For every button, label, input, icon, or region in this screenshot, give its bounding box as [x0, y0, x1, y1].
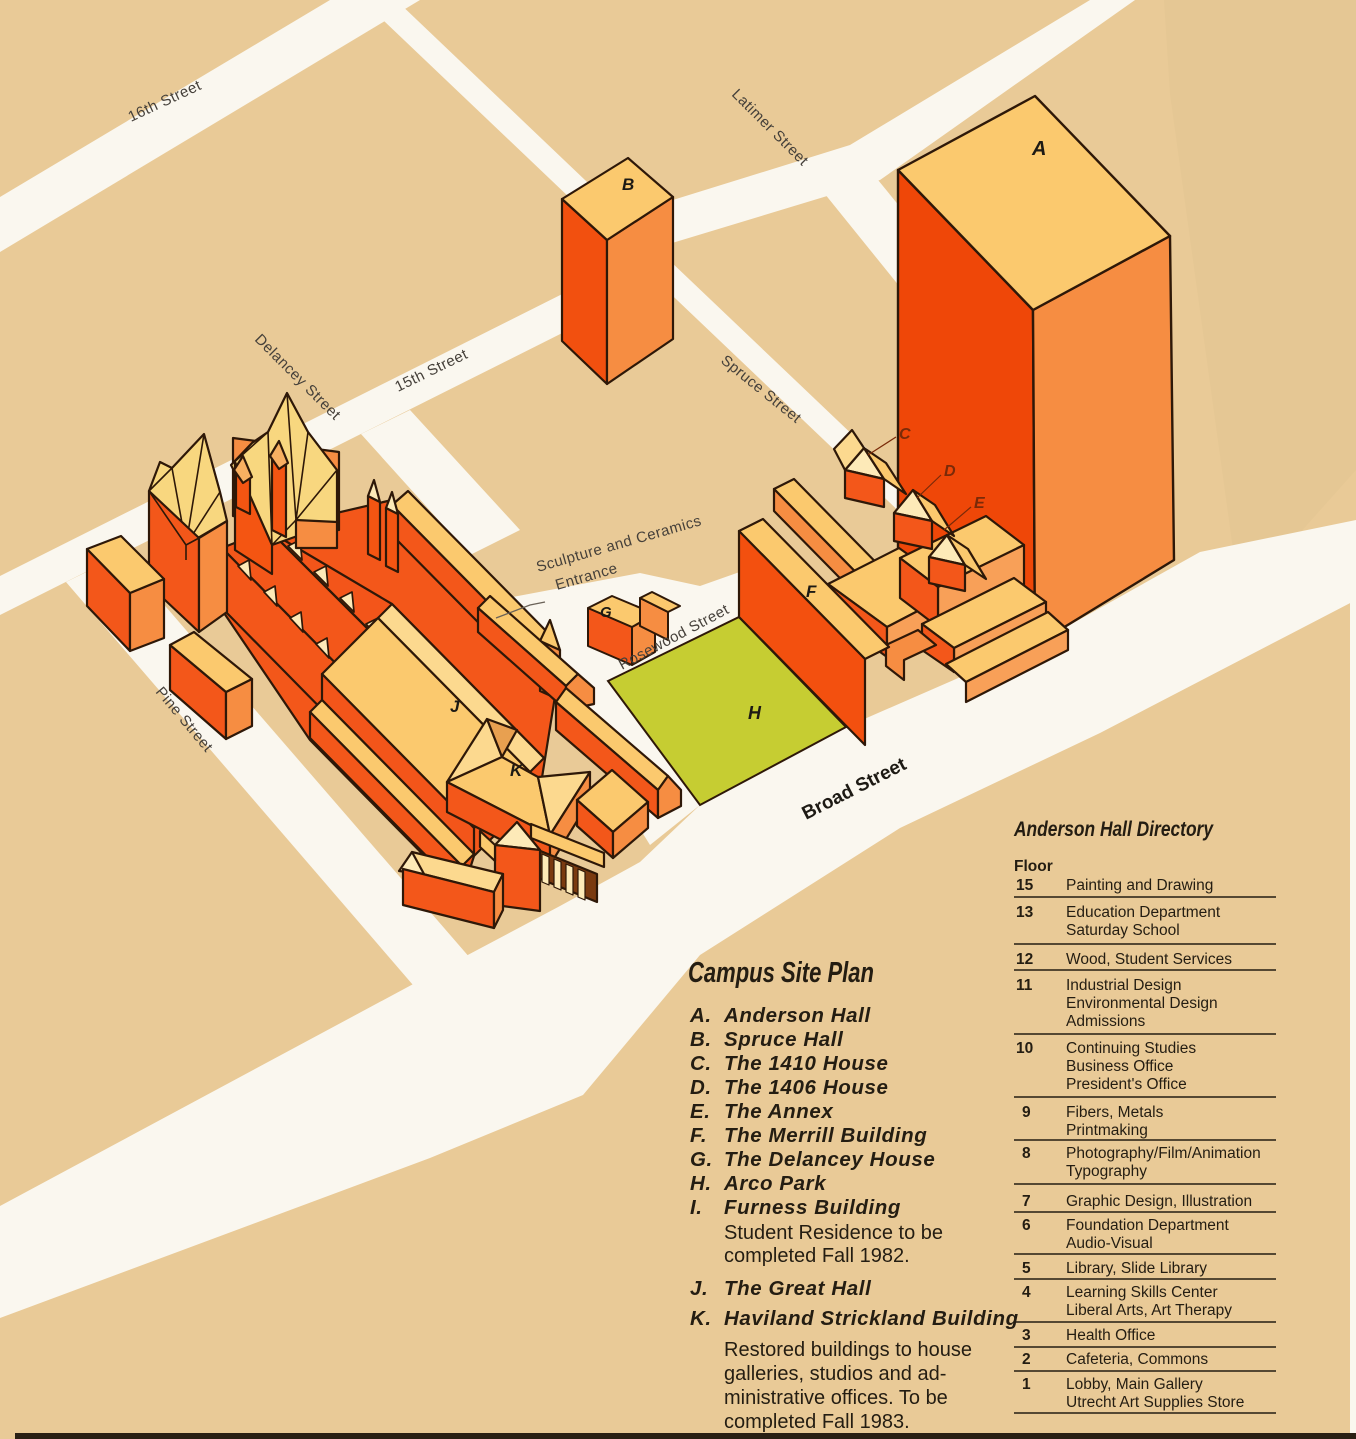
svg-text:Foundation Department: Foundation Department — [1066, 1217, 1230, 1234]
svg-text:The 1406 House: The 1406 House — [724, 1076, 889, 1099]
svg-text:Liberal Arts, Art Therapy: Liberal Arts, Art Therapy — [1066, 1302, 1232, 1319]
svg-text:Typography: Typography — [1066, 1163, 1147, 1180]
svg-text:A.: A. — [689, 1004, 712, 1027]
svg-text:C: C — [899, 426, 911, 443]
svg-text:F: F — [806, 582, 817, 601]
svg-text:Audio-Visual: Audio-Visual — [1066, 1235, 1153, 1252]
svg-text:J.: J. — [690, 1277, 708, 1300]
svg-text:ministrative offices. To be: ministrative offices. To be — [724, 1387, 948, 1409]
svg-text:5: 5 — [1022, 1260, 1031, 1277]
svg-text:Graphic Design, Illustration: Graphic Design, Illustration — [1066, 1193, 1252, 1210]
svg-text:Business Office: Business Office — [1066, 1058, 1173, 1075]
svg-text:1: 1 — [1022, 1376, 1031, 1393]
svg-text:11: 11 — [1016, 977, 1033, 994]
svg-text:H.: H. — [690, 1172, 712, 1195]
svg-text:10: 10 — [1016, 1040, 1033, 1057]
svg-text:3: 3 — [1022, 1327, 1031, 1344]
svg-text:2: 2 — [1022, 1351, 1031, 1368]
svg-text:The Great Hall: The Great Hall — [724, 1277, 872, 1300]
svg-text:H: H — [748, 703, 762, 723]
svg-text:K: K — [510, 761, 524, 780]
svg-text:Admissions: Admissions — [1066, 1013, 1145, 1030]
svg-text:Education Department: Education Department — [1066, 904, 1221, 921]
svg-text:A: A — [1031, 138, 1046, 160]
svg-text:E: E — [974, 495, 986, 512]
svg-text:Campus Site Plan: Campus Site Plan — [688, 957, 874, 989]
svg-text:Lobby, Main Gallery: Lobby, Main Gallery — [1066, 1376, 1203, 1393]
svg-text:Continuing Studies: Continuing Studies — [1066, 1040, 1196, 1057]
svg-text:Learning Skills Center: Learning Skills Center — [1066, 1284, 1218, 1301]
svg-text:Wood, Student Services: Wood, Student Services — [1066, 951, 1232, 968]
svg-text:Restored buildings to house: Restored buildings to house — [724, 1339, 972, 1361]
svg-text:President's Office: President's Office — [1066, 1076, 1187, 1093]
svg-text:D.: D. — [690, 1076, 712, 1099]
svg-text:Saturday School: Saturday School — [1066, 922, 1180, 939]
svg-text:6: 6 — [1022, 1217, 1031, 1234]
svg-text:J: J — [450, 697, 460, 716]
svg-text:9: 9 — [1022, 1104, 1031, 1121]
svg-text:7: 7 — [1022, 1193, 1031, 1210]
svg-text:The 1410 House: The 1410 House — [724, 1052, 889, 1075]
svg-text:Spruce Hall: Spruce Hall — [724, 1028, 844, 1051]
svg-text:Industrial Design: Industrial Design — [1066, 977, 1181, 994]
svg-text:Photography/Film/Animation: Photography/Film/Animation — [1066, 1145, 1261, 1162]
svg-text:Student Residence to be: Student Residence to be — [724, 1222, 943, 1244]
svg-text:Utrecht Art Supplies Store: Utrecht Art Supplies Store — [1066, 1394, 1244, 1411]
svg-text:K.: K. — [690, 1307, 712, 1330]
svg-text:Health Office: Health Office — [1066, 1327, 1155, 1344]
svg-text:13: 13 — [1016, 904, 1034, 921]
svg-text:Library, Slide Library: Library, Slide Library — [1066, 1260, 1207, 1277]
svg-text:The Delancey House: The Delancey House — [724, 1148, 935, 1171]
svg-text:Anderson Hall: Anderson Hall — [723, 1004, 871, 1027]
svg-text:4: 4 — [1022, 1284, 1031, 1301]
svg-text:G: G — [600, 604, 612, 621]
svg-text:Fibers, Metals: Fibers, Metals — [1066, 1104, 1164, 1121]
svg-text:B: B — [622, 175, 634, 194]
svg-text:Furness Building: Furness Building — [724, 1196, 901, 1219]
svg-text:I.: I. — [690, 1196, 703, 1219]
svg-text:Arco Park: Arco Park — [723, 1172, 827, 1195]
svg-text:Cafeteria, Commons: Cafeteria, Commons — [1066, 1351, 1208, 1368]
svg-text:15: 15 — [1016, 877, 1034, 894]
svg-text:8: 8 — [1022, 1145, 1031, 1162]
svg-text:completed Fall 1982.: completed Fall 1982. — [724, 1245, 910, 1267]
svg-text:The Annex: The Annex — [724, 1100, 834, 1123]
svg-text:Environmental Design: Environmental Design — [1066, 995, 1218, 1012]
svg-text:12: 12 — [1016, 951, 1033, 968]
svg-text:Anderson Hall Directory: Anderson Hall Directory — [1013, 818, 1214, 841]
svg-text:E.: E. — [690, 1100, 711, 1123]
svg-text:B.: B. — [690, 1028, 712, 1051]
svg-text:Floor: Floor — [1014, 858, 1053, 875]
svg-text:completed Fall 1983.: completed Fall 1983. — [724, 1411, 910, 1433]
svg-text:G.: G. — [690, 1148, 713, 1171]
svg-text:C.: C. — [690, 1052, 712, 1075]
svg-text:The Merrill Building: The Merrill Building — [724, 1124, 927, 1147]
svg-text:D: D — [944, 463, 956, 480]
svg-text:Printmaking: Printmaking — [1066, 1122, 1148, 1139]
svg-text:galleries, studios and ad-: galleries, studios and ad- — [724, 1363, 946, 1385]
svg-text:Painting and Drawing: Painting and Drawing — [1066, 877, 1213, 894]
svg-text:F.: F. — [690, 1124, 707, 1147]
svg-text:Haviland Strickland Building: Haviland Strickland Building — [724, 1307, 1019, 1330]
